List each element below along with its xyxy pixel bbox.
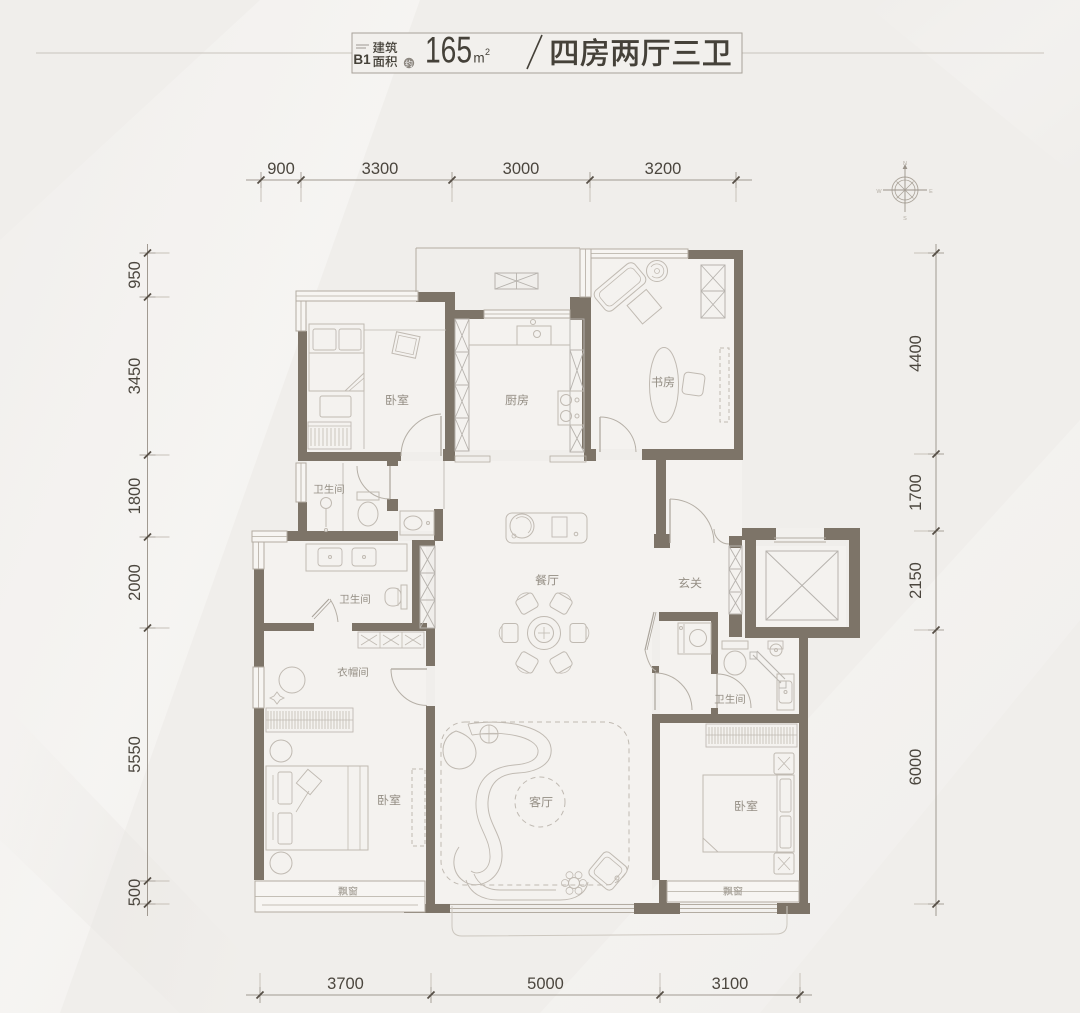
svg-text:3200: 3200: [645, 160, 682, 178]
svg-text:2000: 2000: [126, 564, 144, 601]
svg-text:4400: 4400: [907, 335, 925, 372]
svg-text:E: E: [929, 189, 933, 195]
svg-text:1700: 1700: [907, 474, 925, 511]
svg-text:950: 950: [126, 261, 144, 289]
svg-text:2: 2: [485, 47, 490, 57]
svg-text:3300: 3300: [362, 160, 399, 178]
svg-text:m: m: [473, 51, 484, 66]
svg-text:3700: 3700: [327, 975, 364, 993]
svg-text:5000: 5000: [527, 975, 564, 993]
svg-text:2150: 2150: [907, 562, 925, 599]
svg-text:6000: 6000: [907, 749, 925, 786]
svg-text:B1: B1: [353, 52, 371, 67]
svg-text:500: 500: [126, 879, 144, 907]
svg-text:3100: 3100: [712, 975, 749, 993]
svg-text:S: S: [903, 216, 907, 222]
svg-text:1800: 1800: [126, 478, 144, 515]
svg-text:N: N: [903, 161, 907, 167]
svg-text:3450: 3450: [126, 358, 144, 395]
svg-text:W: W: [876, 189, 882, 195]
svg-text:5550: 5550: [126, 736, 144, 773]
svg-text:165: 165: [425, 30, 472, 71]
svg-text:900: 900: [267, 160, 295, 178]
svg-text:3000: 3000: [503, 160, 540, 178]
